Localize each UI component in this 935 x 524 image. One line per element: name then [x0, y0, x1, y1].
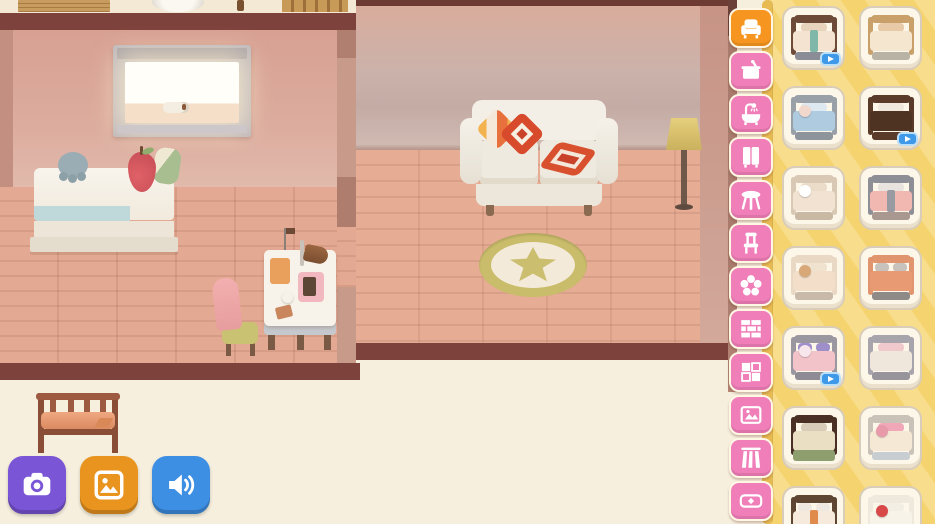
bed-headboard — [794, 15, 834, 23]
bed-front — [34, 221, 174, 237]
floor-beam — [0, 13, 360, 30]
paper-roll — [163, 102, 189, 113]
bed-thumbnail — [868, 254, 914, 302]
bedding-accent — [810, 30, 818, 52]
plush-toy — [876, 505, 888, 517]
plush-toy — [799, 345, 811, 357]
bed-headboard — [794, 175, 834, 183]
floor-lamp[interactable] — [664, 118, 704, 210]
item-bunk-bed[interactable] — [782, 406, 845, 470]
bed-headboard — [794, 335, 834, 343]
upper-floor-strip — [0, 0, 356, 13]
green-pillow[interactable] — [152, 146, 183, 185]
bed-headboard — [794, 255, 834, 263]
chair-back — [211, 277, 242, 331]
item-dark-frame-double-bed[interactable] — [782, 486, 845, 524]
flower-icon — [738, 273, 764, 299]
chair[interactable] — [208, 278, 264, 356]
bed-base — [872, 212, 910, 220]
gallery-icon — [92, 468, 126, 502]
item-dark-wood-bed[interactable] — [859, 86, 922, 150]
plush-toy — [876, 425, 888, 437]
bed-base — [30, 237, 178, 252]
window-sill — [117, 125, 247, 133]
window-glass — [125, 62, 239, 123]
sofa-arm — [596, 118, 618, 184]
white-cup — [282, 292, 293, 303]
sofa-front — [476, 184, 602, 206]
game-scene — [0, 0, 935, 524]
item-grid[interactable] — [782, 6, 928, 524]
plush-toy — [799, 105, 811, 117]
item-terracotta-double-bed[interactable] — [859, 246, 922, 310]
item-simple-single-bed[interactable] — [859, 326, 922, 390]
item-pink-blanket-bed[interactable] — [859, 166, 922, 230]
desk-flag — [284, 228, 286, 250]
bedding-accent — [810, 510, 818, 524]
sound-button[interactable] — [152, 456, 210, 514]
wooden-stick — [237, 0, 244, 11]
tab-flooring[interactable] — [729, 438, 773, 478]
blue-blanket — [34, 206, 130, 221]
bed-thumbnail — [868, 494, 914, 524]
bed-bedding — [793, 111, 835, 131]
bench-cushion — [41, 412, 115, 429]
bed-bedding — [793, 431, 835, 451]
bedding-accent — [887, 190, 895, 212]
action-bar — [8, 456, 228, 516]
tab-rugs[interactable] — [729, 481, 773, 521]
video-unlock-badge[interactable] — [897, 132, 918, 146]
gray-paw-plush[interactable] — [58, 152, 88, 178]
chair-icon — [738, 230, 764, 256]
floor-planks-icon — [738, 445, 764, 471]
bed-bedding — [793, 191, 835, 211]
tab-decor[interactable] — [729, 266, 773, 306]
tiles-icon — [738, 359, 764, 385]
brick-wall-icon — [738, 316, 764, 342]
bed-thumbnail — [868, 14, 914, 62]
item-teddy-bear-bed[interactable] — [782, 246, 845, 310]
pink-tray — [298, 272, 324, 302]
tab-wallpaper[interactable] — [729, 309, 773, 349]
tab-furniture[interactable] — [729, 8, 773, 48]
bed-thumbnail — [868, 174, 914, 222]
right-wall-pillar — [700, 6, 728, 343]
bed-bedding — [793, 351, 835, 371]
plush-toy — [799, 265, 811, 277]
bed-base — [872, 452, 910, 460]
bed-base — [872, 372, 910, 380]
tab-tables[interactable] — [729, 180, 773, 220]
orange-notepad — [270, 258, 290, 284]
bed-thumbnail — [791, 254, 837, 302]
bed-headboard — [794, 95, 834, 103]
camera-icon — [20, 468, 54, 502]
bed-base — [872, 52, 910, 60]
rug-icon — [738, 488, 764, 514]
desk[interactable] — [260, 244, 340, 352]
bed-headboard — [871, 415, 911, 423]
item-blue-striped-bed[interactable] — [782, 86, 845, 150]
bed-headboard — [794, 495, 834, 503]
bed-thumbnail — [791, 174, 837, 222]
bed[interactable] — [28, 158, 180, 260]
star-rug[interactable] — [479, 233, 587, 297]
bed-headboard — [871, 15, 911, 23]
bed-thumbnail — [791, 494, 837, 524]
tab-paintings[interactable] — [729, 395, 773, 435]
bed-bedding — [870, 31, 912, 51]
tab-kitchen[interactable] — [729, 51, 773, 91]
item-floral-double-bed[interactable] — [782, 326, 845, 390]
painting-icon — [738, 402, 764, 428]
right-room-base — [356, 343, 728, 360]
item-sheep-plush-bed[interactable] — [782, 166, 845, 230]
bed-headboard — [794, 415, 834, 423]
item-pink-cushion-bed[interactable] — [859, 406, 922, 470]
bed-headboard — [871, 255, 911, 263]
armchair-icon — [738, 15, 764, 41]
wood-structure — [282, 0, 348, 12]
video-unlock-badge[interactable] — [820, 52, 841, 66]
bed-thumbnail — [791, 414, 837, 462]
bed-thumbnail — [868, 334, 914, 382]
item-heart-pillow-bed[interactable] — [859, 486, 922, 524]
tab-tiles[interactable] — [729, 352, 773, 392]
window[interactable] — [113, 45, 251, 137]
bed-bedding — [793, 271, 835, 291]
sofa[interactable] — [460, 92, 618, 228]
divider-wall — [337, 58, 356, 177]
bed-headboard — [871, 335, 911, 343]
video-unlock-badge[interactable] — [820, 372, 841, 386]
item-panel — [768, 0, 935, 524]
wooden-bench[interactable] — [36, 391, 120, 455]
item-light-wood-bed[interactable] — [859, 6, 922, 70]
bed-bedding — [870, 431, 912, 451]
bed-bedding — [870, 111, 912, 131]
speaker-icon — [164, 468, 198, 502]
divider-wall — [337, 30, 356, 58]
wardrobe-icon — [738, 144, 764, 170]
bed-bedding — [870, 271, 912, 291]
tab-wardrobe[interactable] — [729, 137, 773, 177]
tab-chairs[interactable] — [729, 223, 773, 263]
lamp-shade — [666, 118, 702, 150]
bed-headboard — [871, 95, 911, 103]
divider-wall — [337, 177, 356, 227]
camera-button[interactable] — [8, 456, 66, 514]
wooden-crate — [18, 0, 110, 12]
category-tabs — [729, 8, 773, 521]
yarn-ball — [152, 0, 204, 12]
bed-base — [872, 292, 910, 300]
bed-headboard — [871, 175, 911, 183]
plush-toy — [799, 185, 811, 197]
bathtub-icon — [738, 101, 764, 127]
bed-bedding — [870, 351, 912, 371]
gallery-button[interactable] — [80, 456, 138, 514]
bunk-lower-bedding — [793, 450, 835, 461]
pot-icon — [738, 58, 764, 84]
table-icon — [738, 187, 764, 213]
bed-base — [795, 132, 833, 140]
bed-base — [795, 292, 833, 300]
item-striped-ribbon-bed[interactable] — [782, 6, 845, 70]
tab-bathroom[interactable] — [729, 94, 773, 134]
left-room-base — [0, 363, 360, 380]
bed-headboard — [871, 495, 911, 503]
bed-thumbnail — [868, 414, 914, 462]
bed-thumbnail — [791, 94, 837, 142]
bed-base — [795, 212, 833, 220]
window-valance — [117, 48, 247, 59]
